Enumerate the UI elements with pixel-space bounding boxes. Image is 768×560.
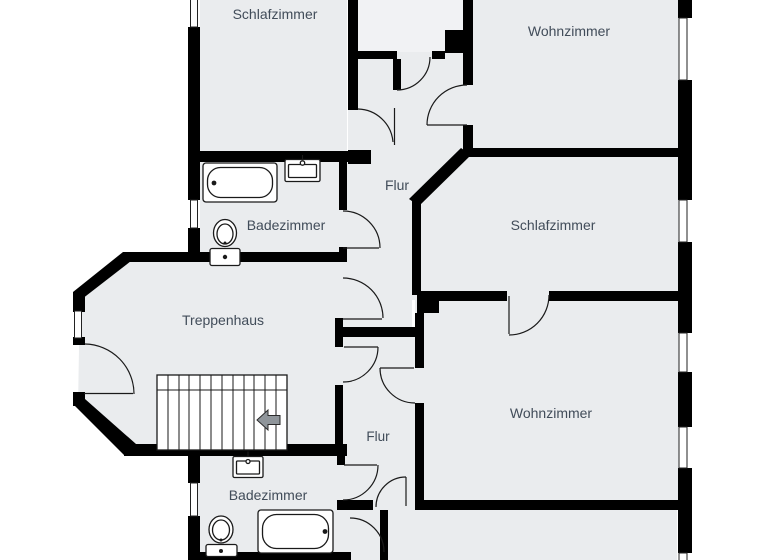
window <box>191 483 198 516</box>
wall-segment <box>463 148 692 157</box>
wall-segment <box>678 0 692 18</box>
wall-segment <box>335 318 343 347</box>
window <box>679 200 687 242</box>
floor-living-bottom-right <box>415 295 685 510</box>
wall-segment <box>123 252 193 262</box>
wall-segment <box>188 27 200 200</box>
wall-segment <box>337 456 345 465</box>
window <box>679 18 687 80</box>
wall-segment <box>195 151 348 162</box>
room-label-stairwell: Treppenhaus <box>182 312 264 328</box>
wall-segment <box>73 292 85 312</box>
window <box>75 311 82 338</box>
room-label-living-top-right: Wohnzimmer <box>528 23 611 39</box>
wall-segment <box>348 51 397 59</box>
room-label-bath-lower: Badezimmer <box>229 487 308 503</box>
floorplan-canvas: Schlafzimmer Wohnzimmer Flur Badezimmer … <box>0 0 768 560</box>
floorplan-drawing: Schlafzimmer Wohnzimmer Flur Badezimmer … <box>0 0 768 560</box>
wall-segment <box>188 516 200 554</box>
wall-segment <box>421 291 507 301</box>
room-label-living-bottom-right: Wohnzimmer <box>510 405 593 421</box>
wall-segment <box>337 500 373 510</box>
window <box>679 333 687 372</box>
wall-segment <box>188 456 200 483</box>
wall-segment <box>432 51 445 59</box>
wall-segment <box>415 500 692 510</box>
floor-areas <box>78 0 685 560</box>
wall-segment <box>678 80 692 200</box>
chimney-block <box>445 30 463 53</box>
window <box>679 427 687 468</box>
floor-bedroom-top-left <box>200 0 347 151</box>
wall-segment <box>335 385 343 445</box>
stairs <box>157 375 287 450</box>
room-label-bedroom-top-left: Schlafzimmer <box>233 6 318 22</box>
wall-segment <box>348 150 371 164</box>
floor-hall-lower <box>339 337 424 515</box>
room-label-bath-upper: Badezimmer <box>247 217 326 233</box>
wall-segment <box>335 327 424 337</box>
room-label-hall-upper: Flur <box>385 177 409 193</box>
wall-segment <box>188 228 200 254</box>
wall-segment <box>678 242 692 333</box>
floor-room-bottom-cut <box>384 510 677 560</box>
wall-segment <box>678 372 692 427</box>
wall-segment <box>412 199 421 295</box>
wall-segment <box>549 291 692 301</box>
window <box>191 0 198 27</box>
wall-segment <box>380 510 388 560</box>
wall-segment <box>678 468 692 553</box>
wall-segment <box>393 59 401 90</box>
wall-segment <box>415 313 424 368</box>
sink-upper <box>285 155 320 182</box>
room-label-hall-lower: Flur <box>366 429 390 444</box>
window <box>191 200 198 228</box>
wall-segment <box>415 403 424 502</box>
window <box>679 553 687 560</box>
bathtub-upper <box>203 163 277 202</box>
room-label-bedroom-right: Schlafzimmer <box>511 217 596 233</box>
wall-segment <box>339 162 347 210</box>
wall-segment <box>463 0 473 85</box>
bathtub-lower <box>258 510 333 553</box>
